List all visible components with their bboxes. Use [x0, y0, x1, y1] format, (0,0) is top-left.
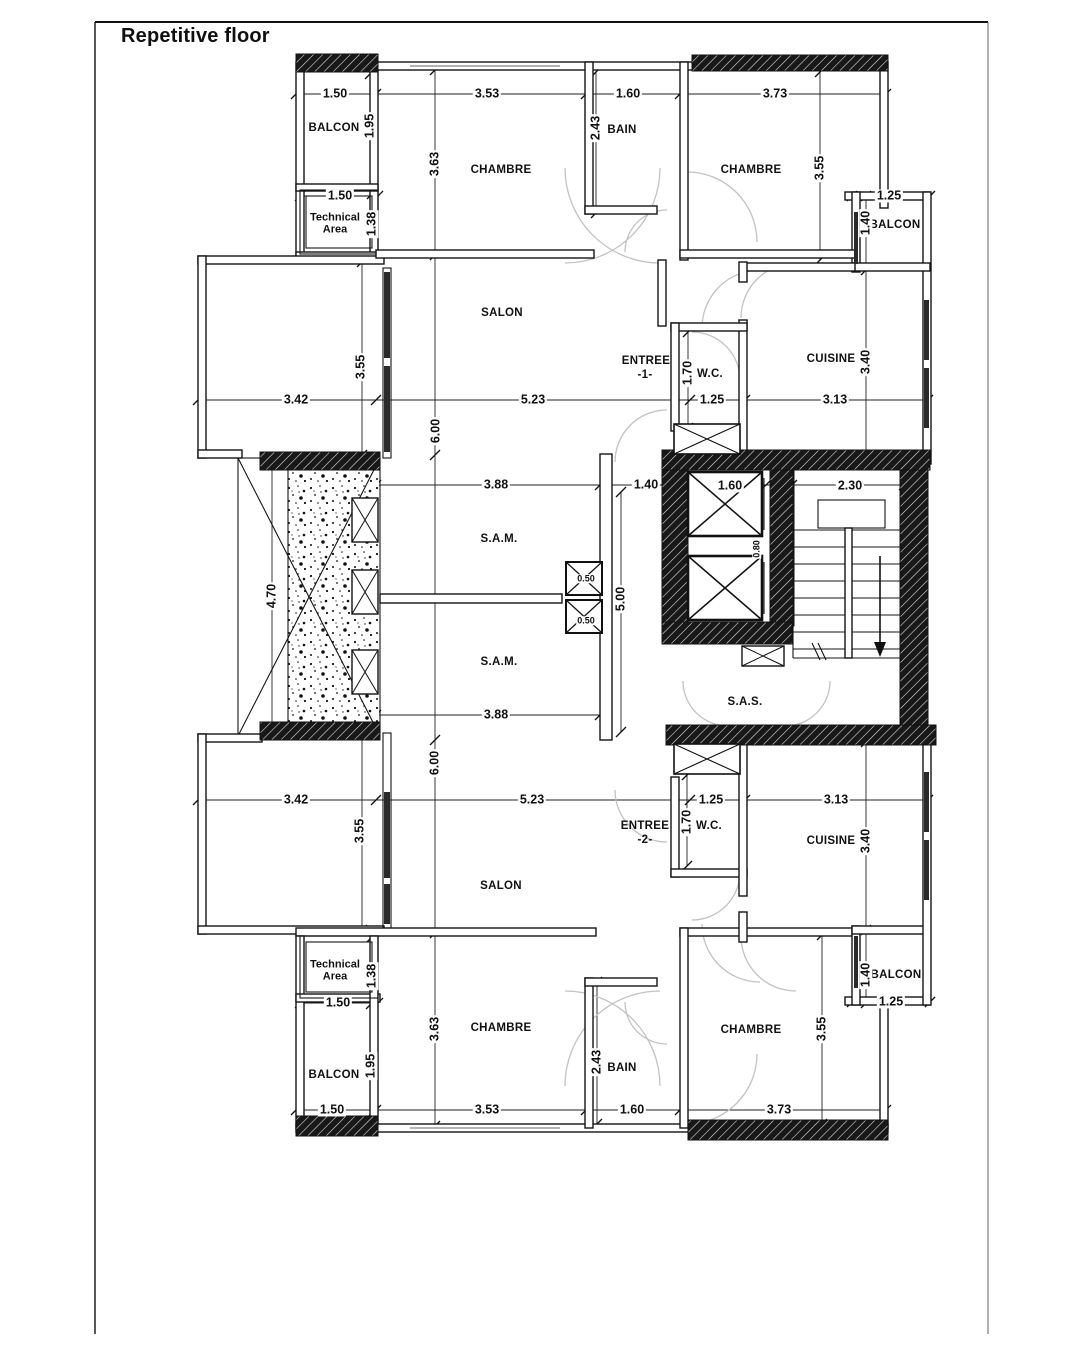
room-label-cuisine: CUISINE [805, 835, 858, 847]
dim-label: 0.80 [752, 539, 761, 559]
room-label-balcon: BALCON [869, 969, 924, 981]
room-label-entree-1: ENTREE [620, 355, 672, 367]
room-label-technical-area: TechnicalArea [308, 959, 362, 982]
dim-label: 1.40 [859, 961, 872, 989]
room-label-entree-1-num: -1- [636, 369, 655, 381]
dim-label: 3.55 [353, 817, 366, 845]
dim-label: 5.23 [518, 793, 546, 806]
dim-label: 1.38 [365, 210, 378, 238]
dim-label: 2.30 [836, 479, 864, 492]
room-label-wc: W.C. [695, 368, 725, 380]
floor-plan-drawing [0, 0, 1080, 1350]
room-label-salon: SALON [479, 307, 525, 319]
room-label-bain: BAIN [605, 1062, 638, 1074]
page-title: Repetitive floor [121, 25, 270, 48]
dim-label: 6.00 [429, 417, 442, 445]
dim-label: 3.55 [813, 154, 826, 182]
staircase [793, 470, 900, 660]
room-label-balcon: BALCON [307, 122, 362, 134]
room-label-entree-2-num: -2- [636, 834, 655, 846]
room-label-chambre: CHAMBRE [469, 1022, 534, 1034]
floor-plan-page: Repetitive floor BALCON TechnicalArea CH… [0, 0, 1080, 1350]
room-label-sam: S.A.M. [479, 656, 520, 668]
dim-label: 1.50 [321, 87, 349, 100]
dim-label: 3.40 [859, 348, 872, 376]
room-label-wc: W.C. [694, 820, 724, 832]
dim-label: 1.25 [875, 189, 903, 202]
dim-label: 1.70 [681, 359, 694, 387]
room-label-chambre: CHAMBRE [719, 164, 784, 176]
dim-label: 1.25 [697, 793, 725, 806]
dim-label: 1.40 [859, 209, 872, 237]
dim-label: 3.42 [282, 393, 310, 406]
dim-label: 1.40 [632, 478, 660, 491]
room-label-chambre: CHAMBRE [719, 1024, 784, 1036]
dim-label: 1.50 [324, 996, 352, 1009]
dim-label: 3.42 [282, 793, 310, 806]
room-label-balcon: BALCON [307, 1069, 362, 1081]
room-label-bain: BAIN [605, 124, 638, 136]
dim-label: 3.73 [761, 87, 789, 100]
dim-label: 1.25 [877, 995, 905, 1008]
room-label-sam: S.A.M. [479, 533, 520, 545]
shaft-void [238, 458, 380, 736]
dim-label: 3.63 [428, 150, 441, 178]
dim-label: 2.43 [589, 114, 602, 142]
room-label-sas: S.A.S. [725, 696, 764, 708]
dim-label: 3.40 [859, 827, 872, 855]
room-label-entree-2: ENTREE [619, 820, 671, 832]
dim-label: 5.23 [519, 393, 547, 406]
room-label-chambre: CHAMBRE [469, 164, 534, 176]
dim-label: 1.25 [698, 393, 726, 406]
dim-label: 3.53 [473, 87, 501, 100]
dim-label: 3.63 [428, 1015, 441, 1043]
dim-label: 3.55 [354, 353, 367, 381]
dim-label: 3.88 [482, 478, 510, 491]
dim-label: 1.60 [716, 479, 744, 492]
dim-label: 3.13 [822, 793, 850, 806]
room-label-technical-area: TechnicalArea [308, 212, 362, 235]
dim-label: 1.95 [364, 1052, 377, 1080]
dim-label: 1.50 [318, 1103, 346, 1116]
room-label-salon: SALON [478, 880, 524, 892]
dim-label: 6.00 [428, 749, 441, 777]
dim-label: 0.50 [576, 616, 596, 625]
dim-label: 3.53 [473, 1103, 501, 1116]
dim-label: 3.55 [815, 1015, 828, 1043]
room-label-balcon: BALCON [868, 219, 923, 231]
dim-label: 1.95 [363, 112, 376, 140]
dim-label: 0.50 [576, 574, 596, 583]
dim-label: 2.43 [590, 1048, 603, 1076]
dim-label: 3.13 [821, 393, 849, 406]
dim-label: 1.38 [365, 962, 378, 990]
dim-label: 4.70 [265, 582, 278, 610]
dim-label: 1.70 [680, 808, 693, 836]
room-label-cuisine: CUISINE [805, 353, 858, 365]
dim-label: 1.60 [614, 87, 642, 100]
dim-label: 1.50 [326, 189, 354, 202]
dim-label: 5.00 [614, 585, 627, 613]
dim-label: 3.73 [765, 1103, 793, 1116]
dim-label: 3.88 [482, 708, 510, 721]
dim-label: 1.60 [618, 1103, 646, 1116]
